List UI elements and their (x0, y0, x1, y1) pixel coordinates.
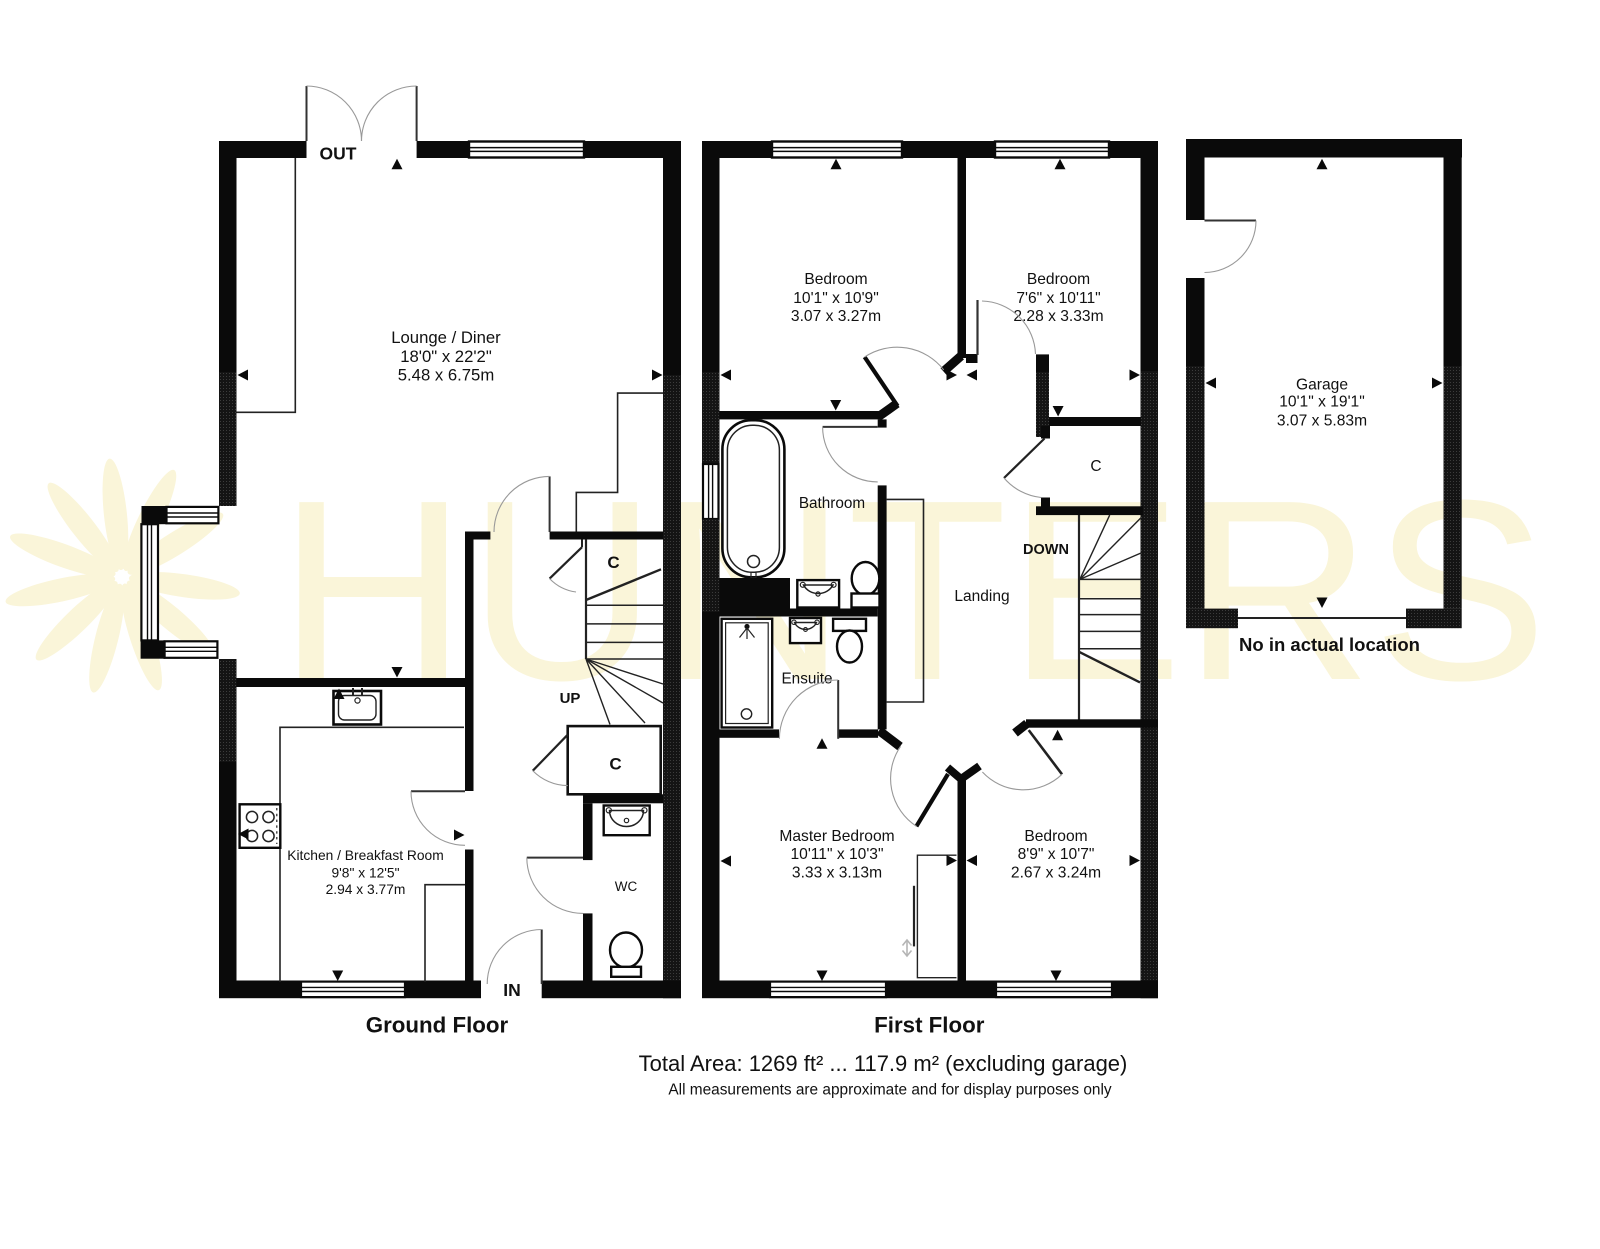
svg-text:Bedroom: Bedroom (1027, 271, 1090, 288)
svg-text:No in actual location: No in actual location (1239, 634, 1420, 655)
svg-text:2.28 x 3.33m: 2.28 x 3.33m (1013, 308, 1103, 325)
svg-text:UP: UP (560, 690, 581, 707)
svg-text:3.07 x 5.83m: 3.07 x 5.83m (1277, 412, 1367, 429)
svg-text:3.33 x 3.13m: 3.33 x 3.13m (792, 864, 882, 881)
svg-text:Bedroom: Bedroom (1024, 828, 1087, 845)
svg-text:All measurements are approxima: All measurements are approximate and for… (668, 1081, 1111, 1098)
svg-text:Garage: Garage (1296, 377, 1348, 394)
svg-text:Bedroom: Bedroom (804, 271, 867, 288)
svg-text:Ground Floor: Ground Floor (366, 1012, 509, 1037)
svg-text:Kitchen / Breakfast Room: Kitchen / Breakfast Room (287, 848, 443, 863)
svg-text:WC: WC (615, 879, 638, 894)
svg-text:Lounge / Diner: Lounge / Diner (391, 328, 501, 347)
svg-text:10'11" x 10'3": 10'11" x 10'3" (790, 846, 883, 863)
svg-text:10'1" x 10'9": 10'1" x 10'9" (793, 290, 879, 307)
svg-text:IN: IN (503, 980, 521, 1000)
svg-text:2.67 x 3.24m: 2.67 x 3.24m (1011, 864, 1101, 881)
svg-text:C: C (607, 553, 619, 572)
svg-text:Ensuite: Ensuite (781, 670, 832, 687)
svg-text:9'8" x 12'5": 9'8" x 12'5" (332, 865, 400, 880)
svg-text:10'1" x 19'1": 10'1" x 19'1" (1279, 394, 1365, 411)
svg-text:7'6" x 10'11": 7'6" x 10'11" (1016, 290, 1100, 307)
svg-text:18'0" x 22'2": 18'0" x 22'2" (400, 347, 492, 366)
svg-text:Landing: Landing (954, 588, 1009, 605)
svg-text:Total Area: 1269 ft² ... 117.9: Total Area: 1269 ft² ... 117.9 m² (exclu… (639, 1051, 1128, 1076)
svg-text:2.94 x 3.77m: 2.94 x 3.77m (326, 882, 406, 897)
svg-text:8'9" x 10'7": 8'9" x 10'7" (1018, 846, 1095, 863)
svg-text:First Floor: First Floor (874, 1012, 985, 1037)
svg-text:3.07 x 3.27m: 3.07 x 3.27m (791, 308, 881, 325)
svg-text:DOWN: DOWN (1023, 542, 1069, 558)
svg-text:Master Bedroom: Master Bedroom (779, 828, 894, 845)
svg-text:C: C (609, 755, 621, 774)
svg-text:OUT: OUT (320, 144, 357, 164)
svg-text:C: C (1090, 458, 1101, 475)
svg-text:Bathroom: Bathroom (799, 495, 865, 512)
svg-text:5.48 x 6.75m: 5.48 x 6.75m (398, 366, 494, 385)
